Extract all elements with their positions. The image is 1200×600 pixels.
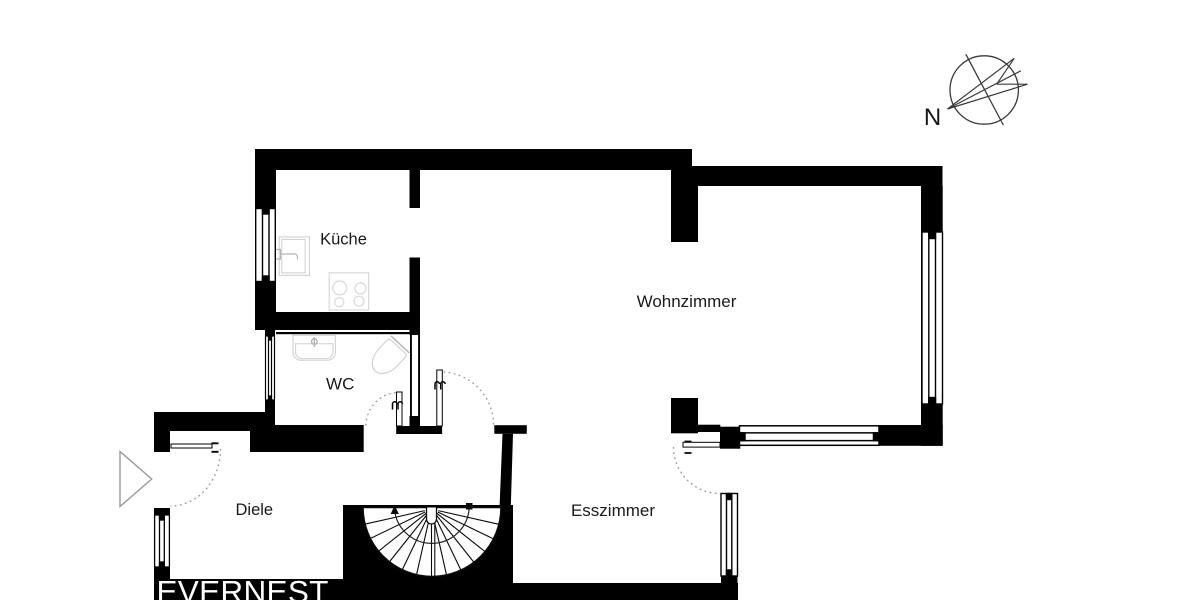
svg-text:Küche: Küche xyxy=(320,231,367,249)
svg-text:Esszimmer: Esszimmer xyxy=(571,501,655,520)
svg-text:WC: WC xyxy=(326,375,354,394)
svg-text:EVERNEST: EVERNEST xyxy=(157,574,329,600)
svg-text:Wohnzimmer: Wohnzimmer xyxy=(637,292,737,311)
svg-text:Diele: Diele xyxy=(235,501,273,519)
svg-text:N: N xyxy=(924,104,941,131)
